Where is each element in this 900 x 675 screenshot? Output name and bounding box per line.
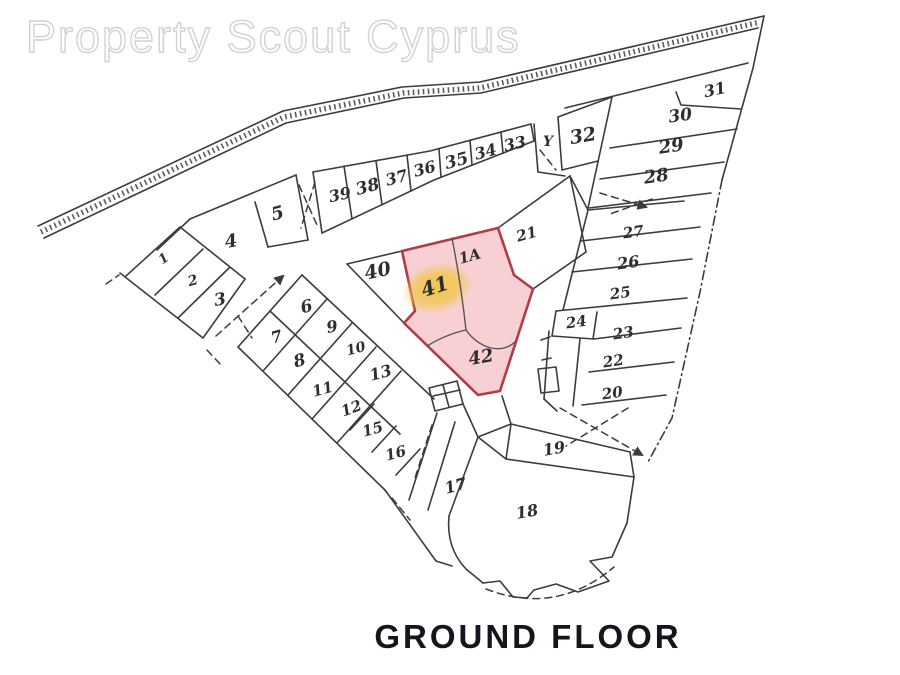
plot-label-4: 4 — [223, 230, 239, 253]
strip-33-39 — [296, 124, 534, 240]
plot-label-5: 5 — [269, 202, 287, 226]
plot-label-6: 6 — [298, 296, 315, 318]
plot-label-26: 26 — [615, 252, 641, 274]
utility-structure-center — [429, 381, 463, 411]
plot-label-21: 21 — [513, 223, 539, 246]
block-east-20-27 — [538, 201, 700, 411]
site-plan-svg: Property Scout Cyprus — [0, 0, 900, 675]
utility-structure-east — [538, 367, 559, 393]
plot-label-31: 31 — [702, 78, 728, 101]
plot-label-9: 9 — [325, 316, 339, 337]
plot-label-23: 23 — [611, 323, 635, 344]
plot-label-32: 32 — [568, 123, 598, 149]
plot-label-3: 3 — [213, 289, 228, 311]
plot-label-28: 28 — [641, 164, 670, 188]
dashed-site-boundary — [648, 180, 722, 462]
plot-label-8: 8 — [290, 350, 308, 373]
caption-text: GROUND FLOOR — [374, 618, 681, 655]
plot-label-36: 36 — [411, 157, 437, 181]
plot-label-13: 13 — [367, 361, 393, 385]
plot-label-30: 30 — [667, 104, 693, 127]
plot-label-1: 1 — [156, 250, 172, 267]
boundary-tick — [106, 275, 119, 284]
plot-label-42: 42 — [467, 345, 495, 370]
plot-label-25: 25 — [608, 283, 632, 304]
plot-label-7: 7 — [269, 326, 285, 347]
plot-19 — [506, 424, 634, 477]
plot-label-35: 35 — [443, 148, 471, 173]
plot-label-33: 33 — [502, 132, 528, 155]
plot-label-18: 18 — [514, 500, 539, 523]
plot-label-40: 40 — [363, 258, 393, 285]
plot-label-2: 2 — [185, 272, 200, 290]
plot-label-16: 16 — [383, 442, 408, 465]
plot-label-22: 22 — [601, 351, 625, 372]
plot-label-19: 19 — [541, 437, 566, 460]
plot-label-34: 34 — [472, 140, 498, 164]
plot-label-37: 37 — [383, 166, 409, 190]
watermark-text: Property Scout Cyprus — [26, 11, 521, 62]
plot-label-27: 27 — [621, 222, 646, 243]
plot-label-20: 20 — [600, 383, 625, 404]
plot-label-15: 15 — [360, 418, 385, 441]
plan-mark-Y: Y — [543, 134, 555, 150]
floorplan-image: Property Scout Cyprus — [0, 0, 900, 675]
plot-label-24: 24 — [564, 312, 588, 333]
plot-label-29: 29 — [656, 134, 685, 158]
plot-label-10: 10 — [344, 339, 367, 360]
plot-label-17: 17 — [442, 474, 468, 498]
south-roads — [409, 396, 511, 516]
